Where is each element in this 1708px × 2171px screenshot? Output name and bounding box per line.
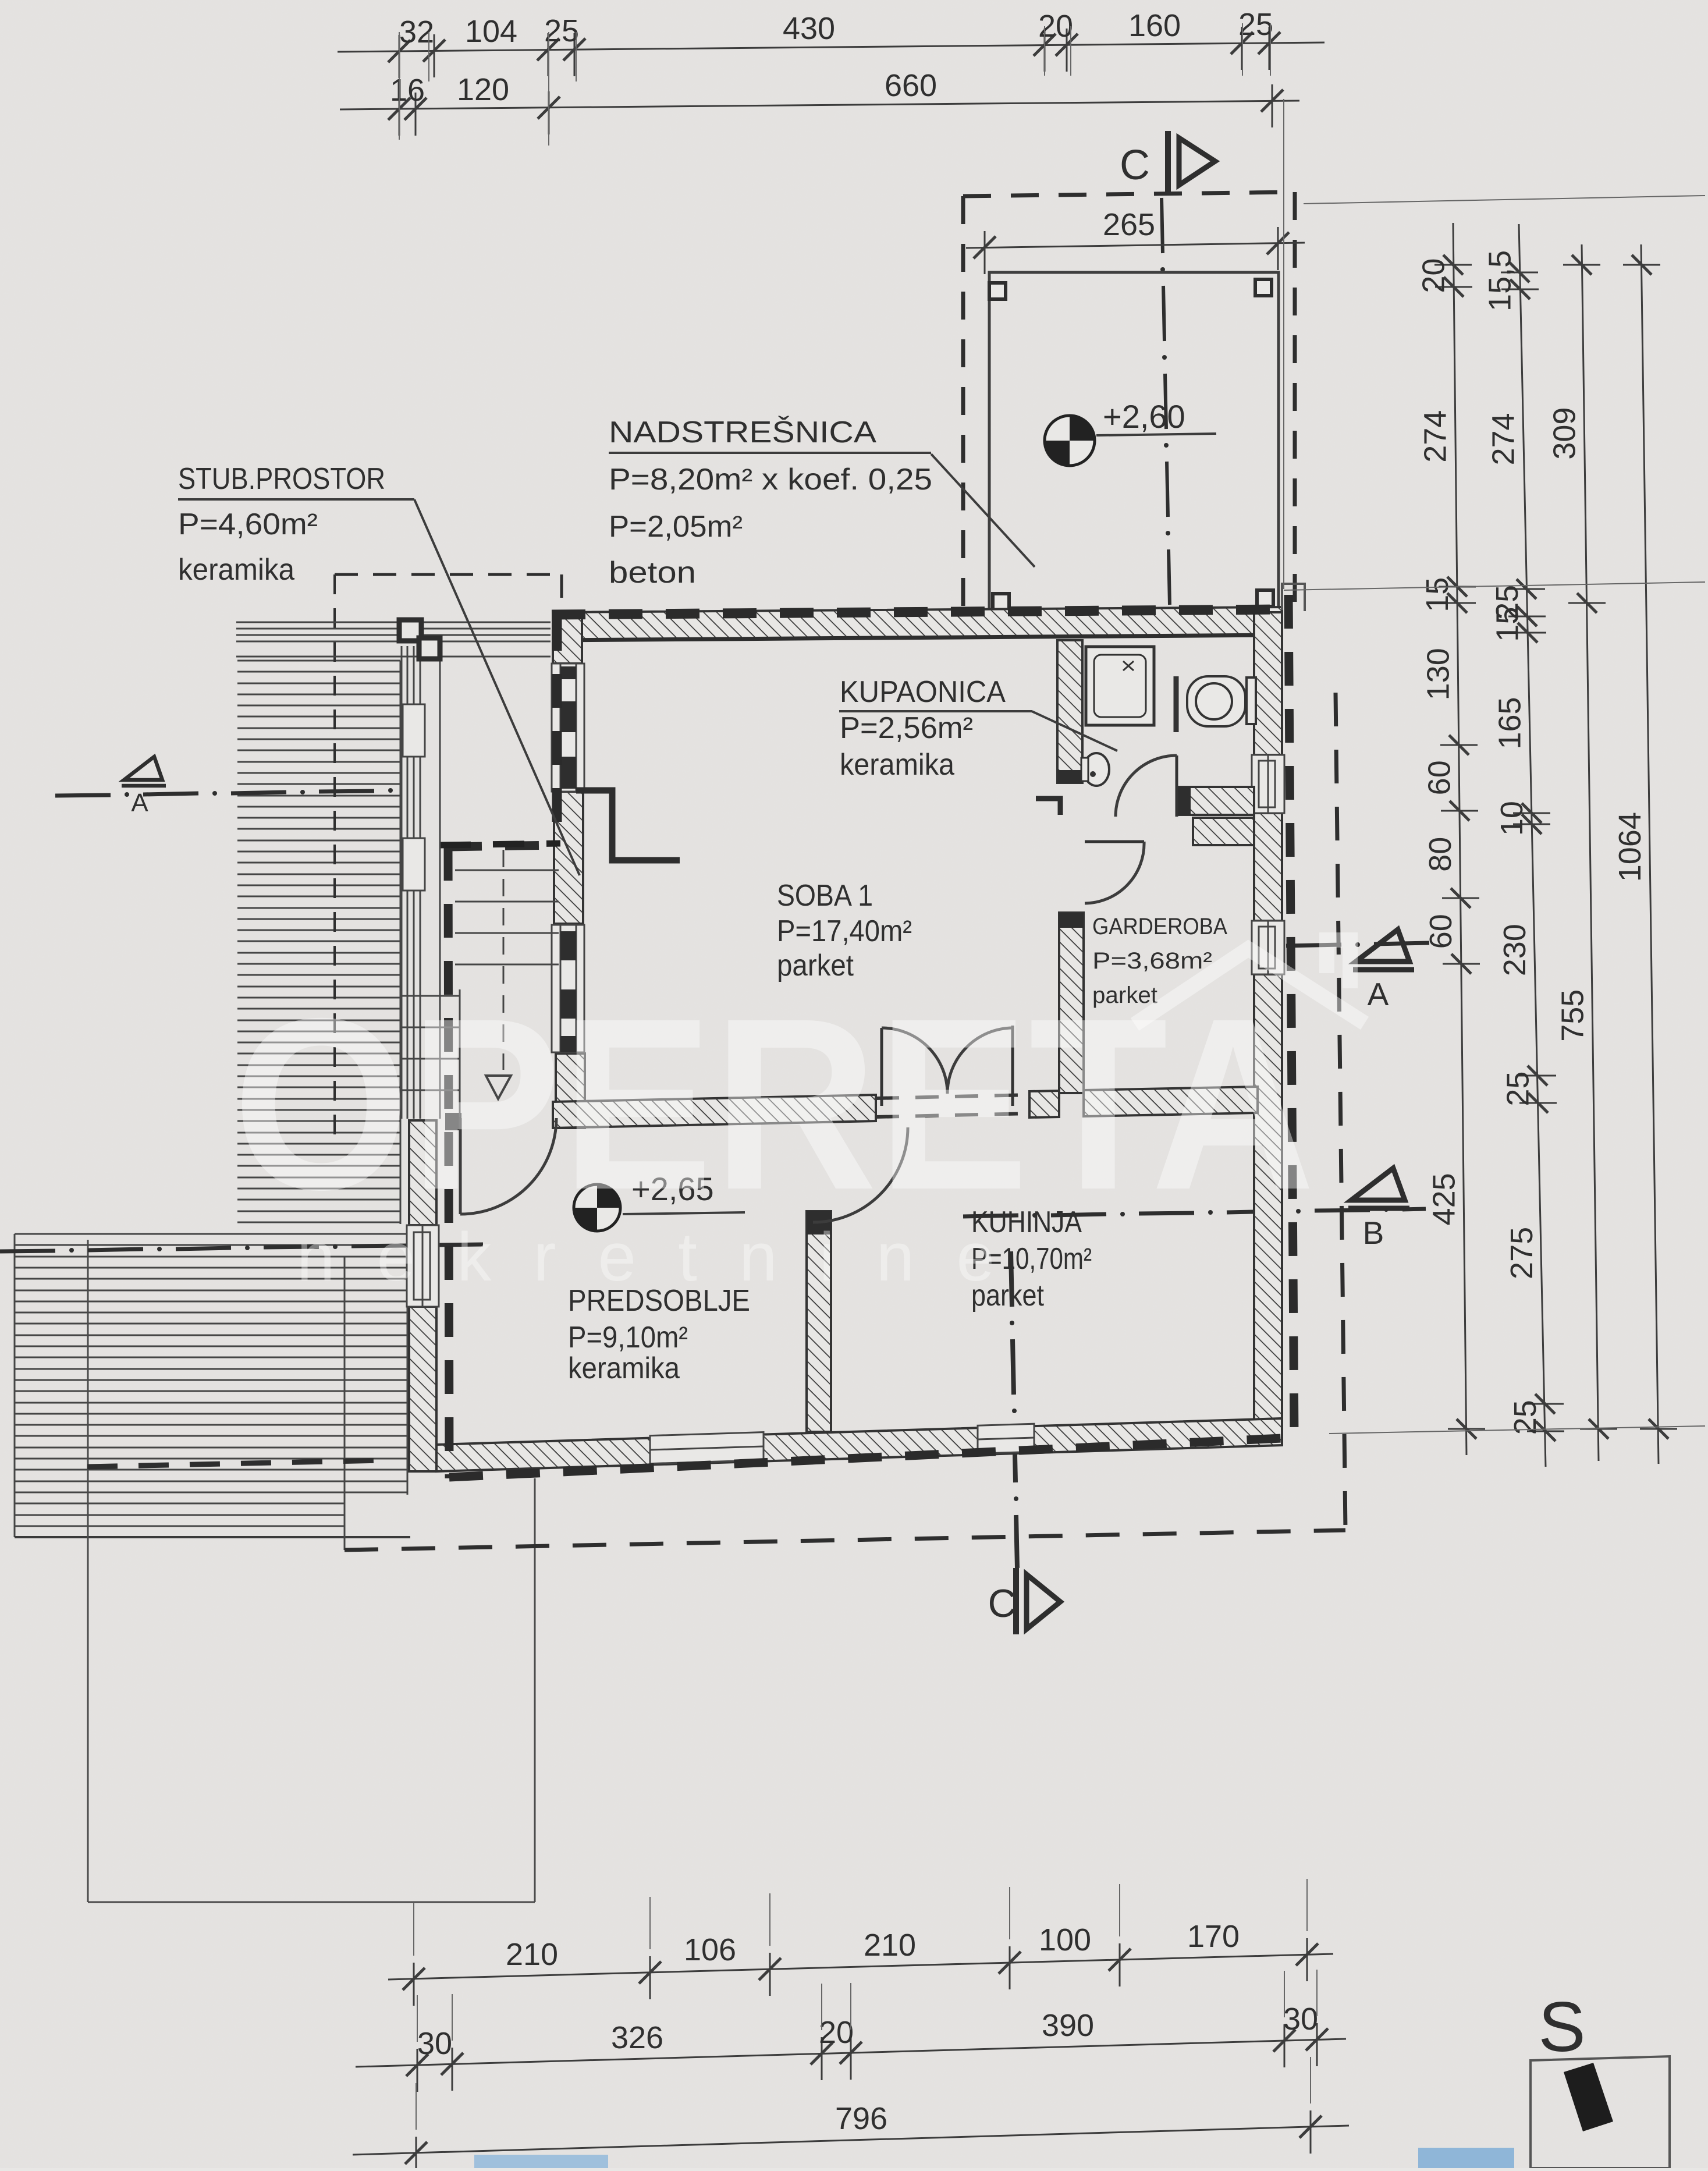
svg-text:25: 25 (1238, 7, 1273, 42)
svg-text:106: 106 (684, 1932, 736, 1967)
svg-text:326: 326 (611, 2020, 663, 2055)
svg-text:P=2,56m²: P=2,56m² (840, 711, 973, 745)
svg-text:10: 10 (1494, 801, 1529, 836)
svg-text:104: 104 (465, 14, 517, 49)
svg-text:25: 25 (1501, 1072, 1536, 1106)
svg-text:30: 30 (1283, 2002, 1318, 2037)
svg-text:STUB.PROSTOR: STUB.PROSTOR (178, 462, 385, 496)
svg-text:60: 60 (1422, 760, 1457, 795)
svg-text:80: 80 (1423, 837, 1458, 872)
svg-text:230: 230 (1497, 924, 1532, 976)
svg-text:beton: beton (609, 556, 696, 590)
svg-text:GARDEROBA: GARDEROBA (1092, 914, 1227, 939)
svg-text:100: 100 (1039, 1922, 1091, 1957)
svg-text:+2,60: +2,60 (1103, 398, 1185, 435)
svg-text:KUPAONICA: KUPAONICA (840, 675, 1006, 709)
svg-text:430: 430 (783, 11, 835, 46)
svg-text:20: 20 (819, 2015, 854, 2050)
svg-text:274: 274 (1486, 413, 1521, 465)
svg-text:390: 390 (1042, 2008, 1094, 2043)
svg-text:S: S (1538, 1987, 1585, 2066)
svg-text:15: 15 (1490, 607, 1525, 642)
svg-text:160: 160 (1128, 8, 1181, 43)
svg-text:130: 130 (1421, 648, 1455, 700)
svg-text:15: 15 (1420, 577, 1455, 612)
svg-text:20: 20 (1416, 258, 1451, 293)
svg-text:nekretnine: nekretnine (297, 1219, 1036, 1296)
svg-text:755: 755 (1556, 989, 1590, 1042)
svg-text:NADSTREŠNICA: NADSTREŠNICA (609, 416, 876, 449)
svg-text:SOBA 1: SOBA 1 (777, 879, 873, 913)
svg-text:120: 120 (457, 72, 509, 107)
svg-text:20: 20 (1038, 9, 1073, 44)
svg-text:P=4,60m²: P=4,60m² (178, 508, 318, 541)
svg-text:P=17,40m²: P=17,40m² (777, 914, 912, 948)
svg-text:15,5: 15,5 (1482, 250, 1517, 311)
svg-text:660: 660 (885, 68, 937, 103)
svg-text:16: 16 (390, 73, 425, 108)
svg-text:C: C (988, 1581, 1016, 1626)
svg-text:30: 30 (417, 2026, 452, 2061)
svg-text:keramika: keramika (840, 748, 954, 782)
svg-text:P=9,10m²: P=9,10m² (568, 1321, 688, 1354)
svg-text:170: 170 (1187, 1919, 1240, 1954)
svg-text:A: A (131, 789, 148, 817)
svg-text:796: 796 (835, 2101, 887, 2136)
svg-text:265: 265 (1103, 207, 1155, 242)
svg-text:274: 274 (1418, 410, 1453, 463)
svg-text:B: B (1363, 1215, 1384, 1251)
svg-text:309: 309 (1547, 407, 1582, 460)
svg-text:165: 165 (1492, 697, 1527, 749)
svg-text:60: 60 (1423, 914, 1458, 949)
svg-text:425: 425 (1426, 1173, 1461, 1225)
svg-text:A: A (1368, 976, 1389, 1012)
svg-text:P=8,20m² x koef. 0,25: P=8,20m² x koef. 0,25 (609, 463, 932, 496)
svg-text:210: 210 (506, 1937, 558, 1972)
svg-text:keramika: keramika (178, 553, 294, 587)
svg-text:keramika: keramika (568, 1351, 680, 1385)
svg-text:C: C (1120, 142, 1150, 189)
svg-text:275: 275 (1504, 1227, 1539, 1279)
svg-text:210: 210 (864, 1928, 916, 1963)
svg-text:P=2,05m²: P=2,05m² (609, 510, 743, 544)
svg-text:1064: 1064 (1613, 812, 1647, 882)
